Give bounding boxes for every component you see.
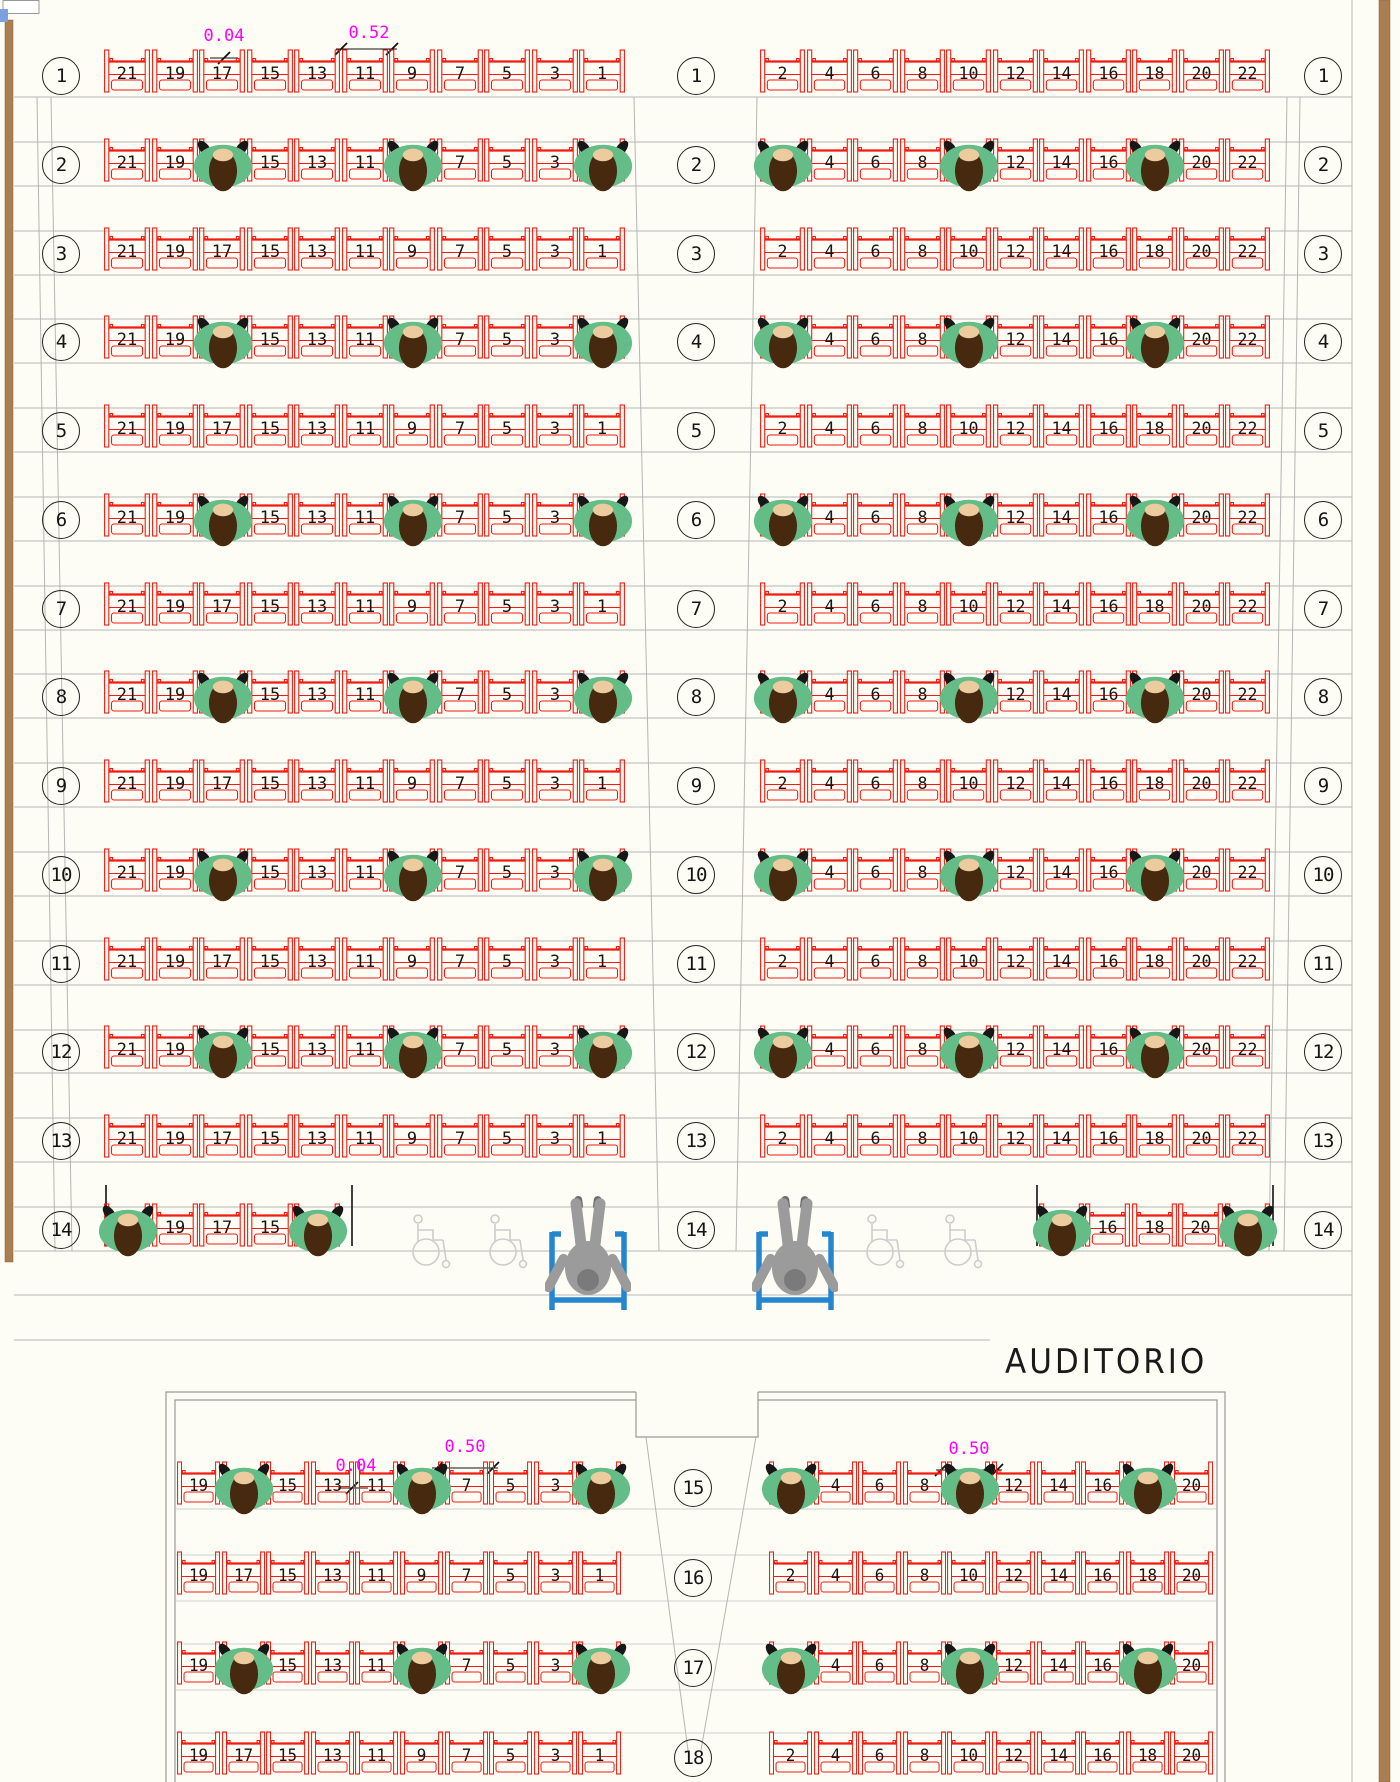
seat-16-16: 16 (1081, 1551, 1124, 1597)
seat-5-2: 2 (760, 404, 805, 450)
seat-icon: 7 (437, 227, 483, 273)
seat-icon: 22 (1225, 759, 1270, 805)
svg-text:14: 14 (1051, 773, 1071, 793)
svg-text:8: 8 (917, 595, 927, 615)
seated-person (572, 1023, 634, 1091)
seat-icon: 19 (152, 670, 198, 716)
seated-person (570, 1639, 632, 1707)
seated-person (572, 313, 634, 381)
svg-text:12: 12 (1004, 1656, 1023, 1676)
seat-icon: 21 (104, 138, 150, 184)
seat-10-13: 13 (294, 848, 340, 894)
seat-icon: 13 (294, 937, 340, 983)
seat-icon: 19 (177, 1731, 220, 1777)
seat-12-3: 3 (532, 1025, 578, 1071)
seat-18-6: 6 (858, 1731, 901, 1777)
seat-13-18: 18 (1132, 1114, 1177, 1160)
seat-18-19: 19 (177, 1731, 220, 1777)
svg-text:18: 18 (1144, 951, 1164, 971)
svg-text:11: 11 (354, 952, 374, 972)
seat-icon: 5 (489, 1551, 532, 1597)
seat-icon: 9 (400, 1551, 443, 1597)
row-number-circle-17-0: 17 (674, 1649, 712, 1687)
seat-7-7: 7 (437, 582, 483, 628)
seat-icon: 1 (579, 227, 625, 273)
svg-text:14: 14 (1049, 1746, 1068, 1766)
seat-icon: 19 (152, 582, 198, 628)
svg-text:3: 3 (549, 1040, 559, 1060)
svg-text:18: 18 (1138, 1566, 1157, 1586)
svg-text:21: 21 (117, 242, 137, 262)
svg-text:4: 4 (824, 595, 834, 615)
seat-icon: 2 (769, 1731, 812, 1777)
svg-text:16: 16 (1098, 507, 1118, 527)
svg-text:2: 2 (777, 595, 787, 615)
svg-text:21: 21 (117, 1129, 137, 1149)
seat-11-9: 9 (389, 937, 435, 983)
seated-person-icon (760, 1639, 822, 1703)
svg-text:2: 2 (777, 418, 787, 438)
svg-text:5: 5 (502, 685, 512, 705)
seat-icon: 19 (152, 1114, 198, 1160)
seat-3-12: 12 (993, 227, 1038, 273)
svg-text:13: 13 (307, 774, 327, 794)
seated-person-icon (192, 1023, 254, 1087)
seat-16-4: 4 (814, 1551, 857, 1597)
seat-18-11: 11 (355, 1731, 398, 1777)
seat-14-15: 15 (247, 1203, 293, 1249)
seat-icon: 14 (1039, 1025, 1084, 1071)
seated-person-icon (391, 1639, 453, 1703)
svg-text:22: 22 (1237, 507, 1257, 527)
seat-icon: 4 (807, 1114, 852, 1160)
seated-person (752, 313, 814, 381)
seat-icon: 6 (853, 138, 898, 184)
seat-icon: 17 (199, 49, 245, 95)
seat-13-19: 19 (152, 1114, 198, 1160)
seat-9-13: 13 (294, 759, 340, 805)
seat-7-9: 9 (389, 582, 435, 628)
svg-text:5: 5 (502, 419, 512, 439)
svg-text:16: 16 (1098, 329, 1118, 349)
seat-icon: 11 (342, 670, 388, 716)
seated-person (382, 668, 444, 736)
seat-icon: 2 (760, 937, 805, 983)
seat-9-8: 8 (900, 759, 945, 805)
seat-5-7: 7 (437, 404, 483, 450)
seat-icon: 13 (294, 49, 340, 95)
seat-icon: 15 (247, 759, 293, 805)
seat-icon: 13 (311, 1731, 354, 1777)
seat-icon: 21 (104, 937, 150, 983)
seat-3-19: 19 (152, 227, 198, 273)
seat-icon: 7 (445, 1731, 488, 1777)
svg-text:4: 4 (824, 951, 834, 971)
seat-4-19: 19 (152, 315, 198, 361)
row-number-circle-14-1: 14 (677, 1211, 715, 1249)
svg-text:15: 15 (259, 64, 279, 84)
seat-icon: 17 (199, 759, 245, 805)
seat-16-2: 2 (769, 1551, 812, 1597)
seat-4-21: 21 (104, 315, 150, 361)
seat-icon: 6 (853, 1025, 898, 1071)
seat-icon: 1 (579, 759, 625, 805)
seat-2-5: 5 (484, 138, 530, 184)
svg-text:6: 6 (870, 418, 880, 438)
svg-text:12: 12 (1005, 1128, 1025, 1148)
seat-7-5: 5 (484, 582, 530, 628)
svg-text:8: 8 (917, 418, 927, 438)
svg-text:13: 13 (307, 1129, 327, 1149)
svg-text:6: 6 (870, 507, 880, 527)
seat-1-18: 18 (1132, 49, 1177, 95)
svg-text:5: 5 (506, 1746, 516, 1766)
svg-text:21: 21 (117, 863, 137, 883)
seat-icon: 11 (342, 49, 388, 95)
seat-icon: 2 (760, 227, 805, 273)
svg-text:15: 15 (259, 153, 279, 173)
seat-15-5: 5 (489, 1461, 532, 1507)
svg-text:13: 13 (323, 1746, 342, 1766)
svg-text:7: 7 (454, 597, 464, 617)
seated-person (382, 136, 444, 204)
svg-text:20: 20 (1182, 1746, 1201, 1766)
seat-icon: 12 (993, 1114, 1038, 1160)
svg-text:15: 15 (259, 952, 279, 972)
seat-13-7: 7 (437, 1114, 483, 1160)
seat-7-2: 2 (760, 582, 805, 628)
seat-icon: 17 (199, 1114, 245, 1160)
seat-icon: 8 (900, 404, 945, 450)
seat-icon: 11 (342, 1114, 388, 1160)
auditorium-label: AUDITORIO (1005, 1343, 1207, 1382)
seat-icon: 22 (1225, 1025, 1270, 1071)
seat-16-6: 6 (858, 1551, 901, 1597)
seat-13-21: 21 (104, 1114, 150, 1160)
seat-16-10: 10 (947, 1551, 990, 1597)
svg-text:15: 15 (278, 1566, 297, 1586)
seat-16-13: 13 (311, 1551, 354, 1597)
seated-person-icon (287, 1201, 349, 1265)
seat-icon: 11 (342, 582, 388, 628)
svg-text:14: 14 (1051, 329, 1071, 349)
seated-person (192, 668, 254, 736)
svg-text:15: 15 (259, 1040, 279, 1060)
seat-7-21: 21 (104, 582, 150, 628)
seat-2-11: 11 (342, 138, 388, 184)
seat-icon: 1 (579, 937, 625, 983)
seat-7-13: 13 (294, 582, 340, 628)
seat-5-11: 11 (342, 404, 388, 450)
seat-7-4: 4 (807, 582, 852, 628)
seat-5-15: 15 (247, 404, 293, 450)
seat-5-19: 19 (152, 404, 198, 450)
seat-17-13: 13 (311, 1641, 354, 1687)
seat-icon: 13 (294, 315, 340, 361)
svg-text:21: 21 (117, 774, 137, 794)
seat-6-6: 6 (853, 493, 898, 539)
seat-icon: 1 (578, 1731, 621, 1777)
seat-3-6: 6 (853, 227, 898, 273)
seat-icon: 16 (1086, 759, 1131, 805)
seat-2-21: 21 (104, 138, 150, 184)
seat-13-10: 10 (946, 1114, 991, 1160)
seat-7-14: 14 (1039, 582, 1084, 628)
row-number-circle-3-2: 3 (1304, 235, 1342, 273)
svg-text:11: 11 (354, 597, 374, 617)
seat-icon: 3 (532, 315, 578, 361)
svg-text:2: 2 (786, 1566, 796, 1586)
seat-11-3: 3 (532, 937, 578, 983)
seat-icon: 14 (1039, 937, 1084, 983)
seat-icon: 22 (1225, 937, 1270, 983)
row-number-circle-13-1: 13 (677, 1122, 715, 1160)
seat-icon: 14 (1039, 404, 1084, 450)
svg-text:19: 19 (164, 863, 184, 883)
svg-text:20: 20 (1191, 595, 1211, 615)
svg-text:9: 9 (407, 774, 417, 794)
seat-icon: 20 (1179, 404, 1224, 450)
svg-text:2: 2 (777, 240, 787, 260)
seat-icon: 20 (1179, 937, 1224, 983)
seat-icon: 18 (1126, 1551, 1169, 1597)
seat-1-10: 10 (946, 49, 991, 95)
seat-17-14: 14 (1037, 1641, 1080, 1687)
seated-person (213, 1459, 275, 1527)
svg-text:12: 12 (1005, 595, 1025, 615)
svg-text:16: 16 (1098, 1039, 1118, 1059)
svg-text:11: 11 (354, 685, 374, 705)
seated-person-icon (192, 846, 254, 910)
seat-icon: 6 (853, 759, 898, 805)
seat-icon: 5 (484, 848, 530, 894)
seat-icon: 18 (1132, 1114, 1177, 1160)
svg-text:13: 13 (307, 1040, 327, 1060)
svg-text:3: 3 (549, 597, 559, 617)
svg-text:7: 7 (454, 863, 464, 883)
svg-text:3: 3 (551, 1656, 561, 1676)
seat-icon: 5 (484, 138, 530, 184)
seat-4-11: 11 (342, 315, 388, 361)
seated-person-icon (1117, 1459, 1179, 1523)
row-number-circle-18-0: 18 (674, 1739, 712, 1777)
seat-5-13: 13 (294, 404, 340, 450)
seat-icon: 21 (104, 315, 150, 361)
seat-icon: 4 (807, 937, 852, 983)
svg-text:17: 17 (212, 64, 232, 84)
seat-17-5: 5 (489, 1641, 532, 1687)
seated-person-icon (752, 136, 814, 200)
seated-person-icon (382, 846, 444, 910)
seat-18-13: 13 (311, 1731, 354, 1777)
row-number-circle-5-1: 5 (677, 412, 715, 450)
svg-text:5: 5 (506, 1656, 516, 1676)
seat-18-9: 9 (400, 1731, 443, 1777)
svg-text:6: 6 (870, 1128, 880, 1148)
seat-icon: 4 (807, 404, 852, 450)
svg-text:1: 1 (597, 774, 607, 794)
seat-11-14: 14 (1039, 937, 1084, 983)
seat-icon: 6 (853, 227, 898, 273)
seat-18-12: 12 (992, 1731, 1035, 1777)
seat-13-6: 6 (853, 1114, 898, 1160)
seat-12-13: 13 (294, 1025, 340, 1071)
seat-icon: 22 (1225, 848, 1270, 894)
seat-icon: 15 (247, 582, 293, 628)
seat-icon: 20 (1170, 1551, 1213, 1597)
row-number-circle-7-2: 7 (1304, 590, 1342, 628)
seat-icon: 21 (104, 404, 150, 450)
seat-1-9: 9 (389, 49, 435, 95)
svg-text:13: 13 (307, 597, 327, 617)
svg-text:8: 8 (920, 1476, 930, 1496)
seat-icon: 21 (104, 848, 150, 894)
seat-9-9: 9 (389, 759, 435, 805)
svg-text:7: 7 (454, 685, 464, 705)
svg-text:8: 8 (917, 951, 927, 971)
seat-icon: 18 (1126, 1731, 1169, 1777)
seat-3-21: 21 (104, 227, 150, 273)
seat-18-17: 17 (222, 1731, 265, 1777)
seat-1-19: 19 (152, 49, 198, 95)
seat-7-1: 1 (579, 582, 625, 628)
svg-text:10: 10 (958, 773, 978, 793)
svg-text:8: 8 (917, 152, 927, 172)
seat-8-22: 22 (1225, 670, 1270, 716)
seat-5-8: 8 (900, 404, 945, 450)
seat-9-4: 4 (807, 759, 852, 805)
seat-icon: 13 (294, 670, 340, 716)
seat-icon: 21 (104, 1114, 150, 1160)
seat-4-14: 14 (1039, 315, 1084, 361)
seat-11-12: 12 (993, 937, 1038, 983)
seat-8-11: 11 (342, 670, 388, 716)
seat-11-21: 21 (104, 937, 150, 983)
svg-text:20: 20 (1191, 1039, 1211, 1059)
seat-6-22: 22 (1225, 493, 1270, 539)
seat-8-13: 13 (294, 670, 340, 716)
seat-4-5: 5 (484, 315, 530, 361)
svg-text:12: 12 (1005, 418, 1025, 438)
seat-4-6: 6 (853, 315, 898, 361)
row-number-circle-1-1: 1 (677, 57, 715, 95)
row-number-circle-3-1: 3 (677, 235, 715, 273)
svg-text:20: 20 (1191, 862, 1211, 882)
seat-17-6: 6 (858, 1641, 901, 1687)
svg-text:8: 8 (917, 684, 927, 704)
seat-icon: 10 (946, 404, 991, 450)
seat-18-14: 14 (1037, 1731, 1080, 1777)
seat-1-5: 5 (484, 49, 530, 95)
seat-10-5: 5 (484, 848, 530, 894)
seat-7-8: 8 (900, 582, 945, 628)
seat-icon: 7 (445, 1551, 488, 1597)
seat-icon: 12 (993, 937, 1038, 983)
seat-12-11: 11 (342, 1025, 388, 1071)
svg-text:17: 17 (212, 1129, 232, 1149)
svg-text:18: 18 (1144, 773, 1164, 793)
seat-icon: 22 (1225, 138, 1270, 184)
svg-text:10: 10 (958, 63, 978, 83)
row-number-circle-10-1: 10 (677, 856, 715, 894)
svg-text:12: 12 (1005, 329, 1025, 349)
seat-4-13: 13 (294, 315, 340, 361)
seat-icon: 7 (437, 582, 483, 628)
seated-person-icon (570, 1459, 632, 1523)
seat-icon: 19 (152, 49, 198, 95)
row-number-circle-1-2: 1 (1304, 57, 1342, 95)
seat-1-4: 4 (807, 49, 852, 95)
svg-text:8: 8 (917, 63, 927, 83)
seat-icon: 5 (484, 582, 530, 628)
svg-text:19: 19 (189, 1566, 208, 1586)
row-number-circle-2-2: 2 (1304, 146, 1342, 184)
svg-text:2: 2 (786, 1746, 796, 1766)
svg-text:22: 22 (1237, 63, 1257, 83)
seat-icon: 20 (1179, 759, 1224, 805)
seat-icon: 3 (534, 1731, 577, 1777)
svg-text:19: 19 (164, 952, 184, 972)
seat-16-11: 11 (355, 1551, 398, 1597)
seat-icon: 14 (1039, 582, 1084, 628)
seat-icon: 16 (1081, 1731, 1124, 1777)
seat-8-21: 21 (104, 670, 150, 716)
svg-text:4: 4 (824, 684, 834, 704)
seated-person (382, 846, 444, 914)
seat-2-3: 3 (532, 138, 578, 184)
seat-icon: 22 (1225, 582, 1270, 628)
svg-text:4: 4 (824, 418, 834, 438)
svg-text:22: 22 (1237, 240, 1257, 260)
seat-13-11: 11 (342, 1114, 388, 1160)
seat-icon: 4 (807, 227, 852, 273)
seat-icon: 3 (532, 670, 578, 716)
seat-icon: 19 (152, 848, 198, 894)
svg-text:21: 21 (117, 419, 137, 439)
row-number-circle-1-0: 1 (42, 57, 80, 95)
seat-icon: 19 (152, 227, 198, 273)
seat-1-20: 20 (1179, 49, 1224, 95)
svg-text:5: 5 (502, 952, 512, 972)
svg-text:9: 9 (407, 597, 417, 617)
seat-15-6: 6 (858, 1461, 901, 1507)
seat-8-6: 6 (853, 670, 898, 716)
seat-icon: 10 (947, 1731, 990, 1777)
seat-icon: 21 (104, 493, 150, 539)
svg-text:22: 22 (1237, 684, 1257, 704)
svg-text:5: 5 (506, 1476, 516, 1496)
seat-11-1: 1 (579, 937, 625, 983)
seat-16-1: 1 (578, 1551, 621, 1597)
seat-icon: 17 (199, 227, 245, 273)
svg-text:21: 21 (117, 952, 137, 972)
svg-text:15: 15 (278, 1476, 297, 1496)
seat-12-6: 6 (853, 1025, 898, 1071)
svg-text:11: 11 (354, 1040, 374, 1060)
svg-text:7: 7 (454, 419, 464, 439)
seated-person (382, 491, 444, 559)
seat-icon: 22 (1225, 404, 1270, 450)
seat-icon: 12 (993, 227, 1038, 273)
seat-14-18: 18 (1132, 1203, 1177, 1249)
seated-person (1124, 1023, 1186, 1091)
seat-icon: 21 (104, 582, 150, 628)
seat-icon: 2 (769, 1551, 812, 1597)
seat-icon: 19 (177, 1551, 220, 1597)
svg-text:13: 13 (307, 153, 327, 173)
svg-text:11: 11 (354, 1129, 374, 1149)
seat-icon: 8 (900, 227, 945, 273)
